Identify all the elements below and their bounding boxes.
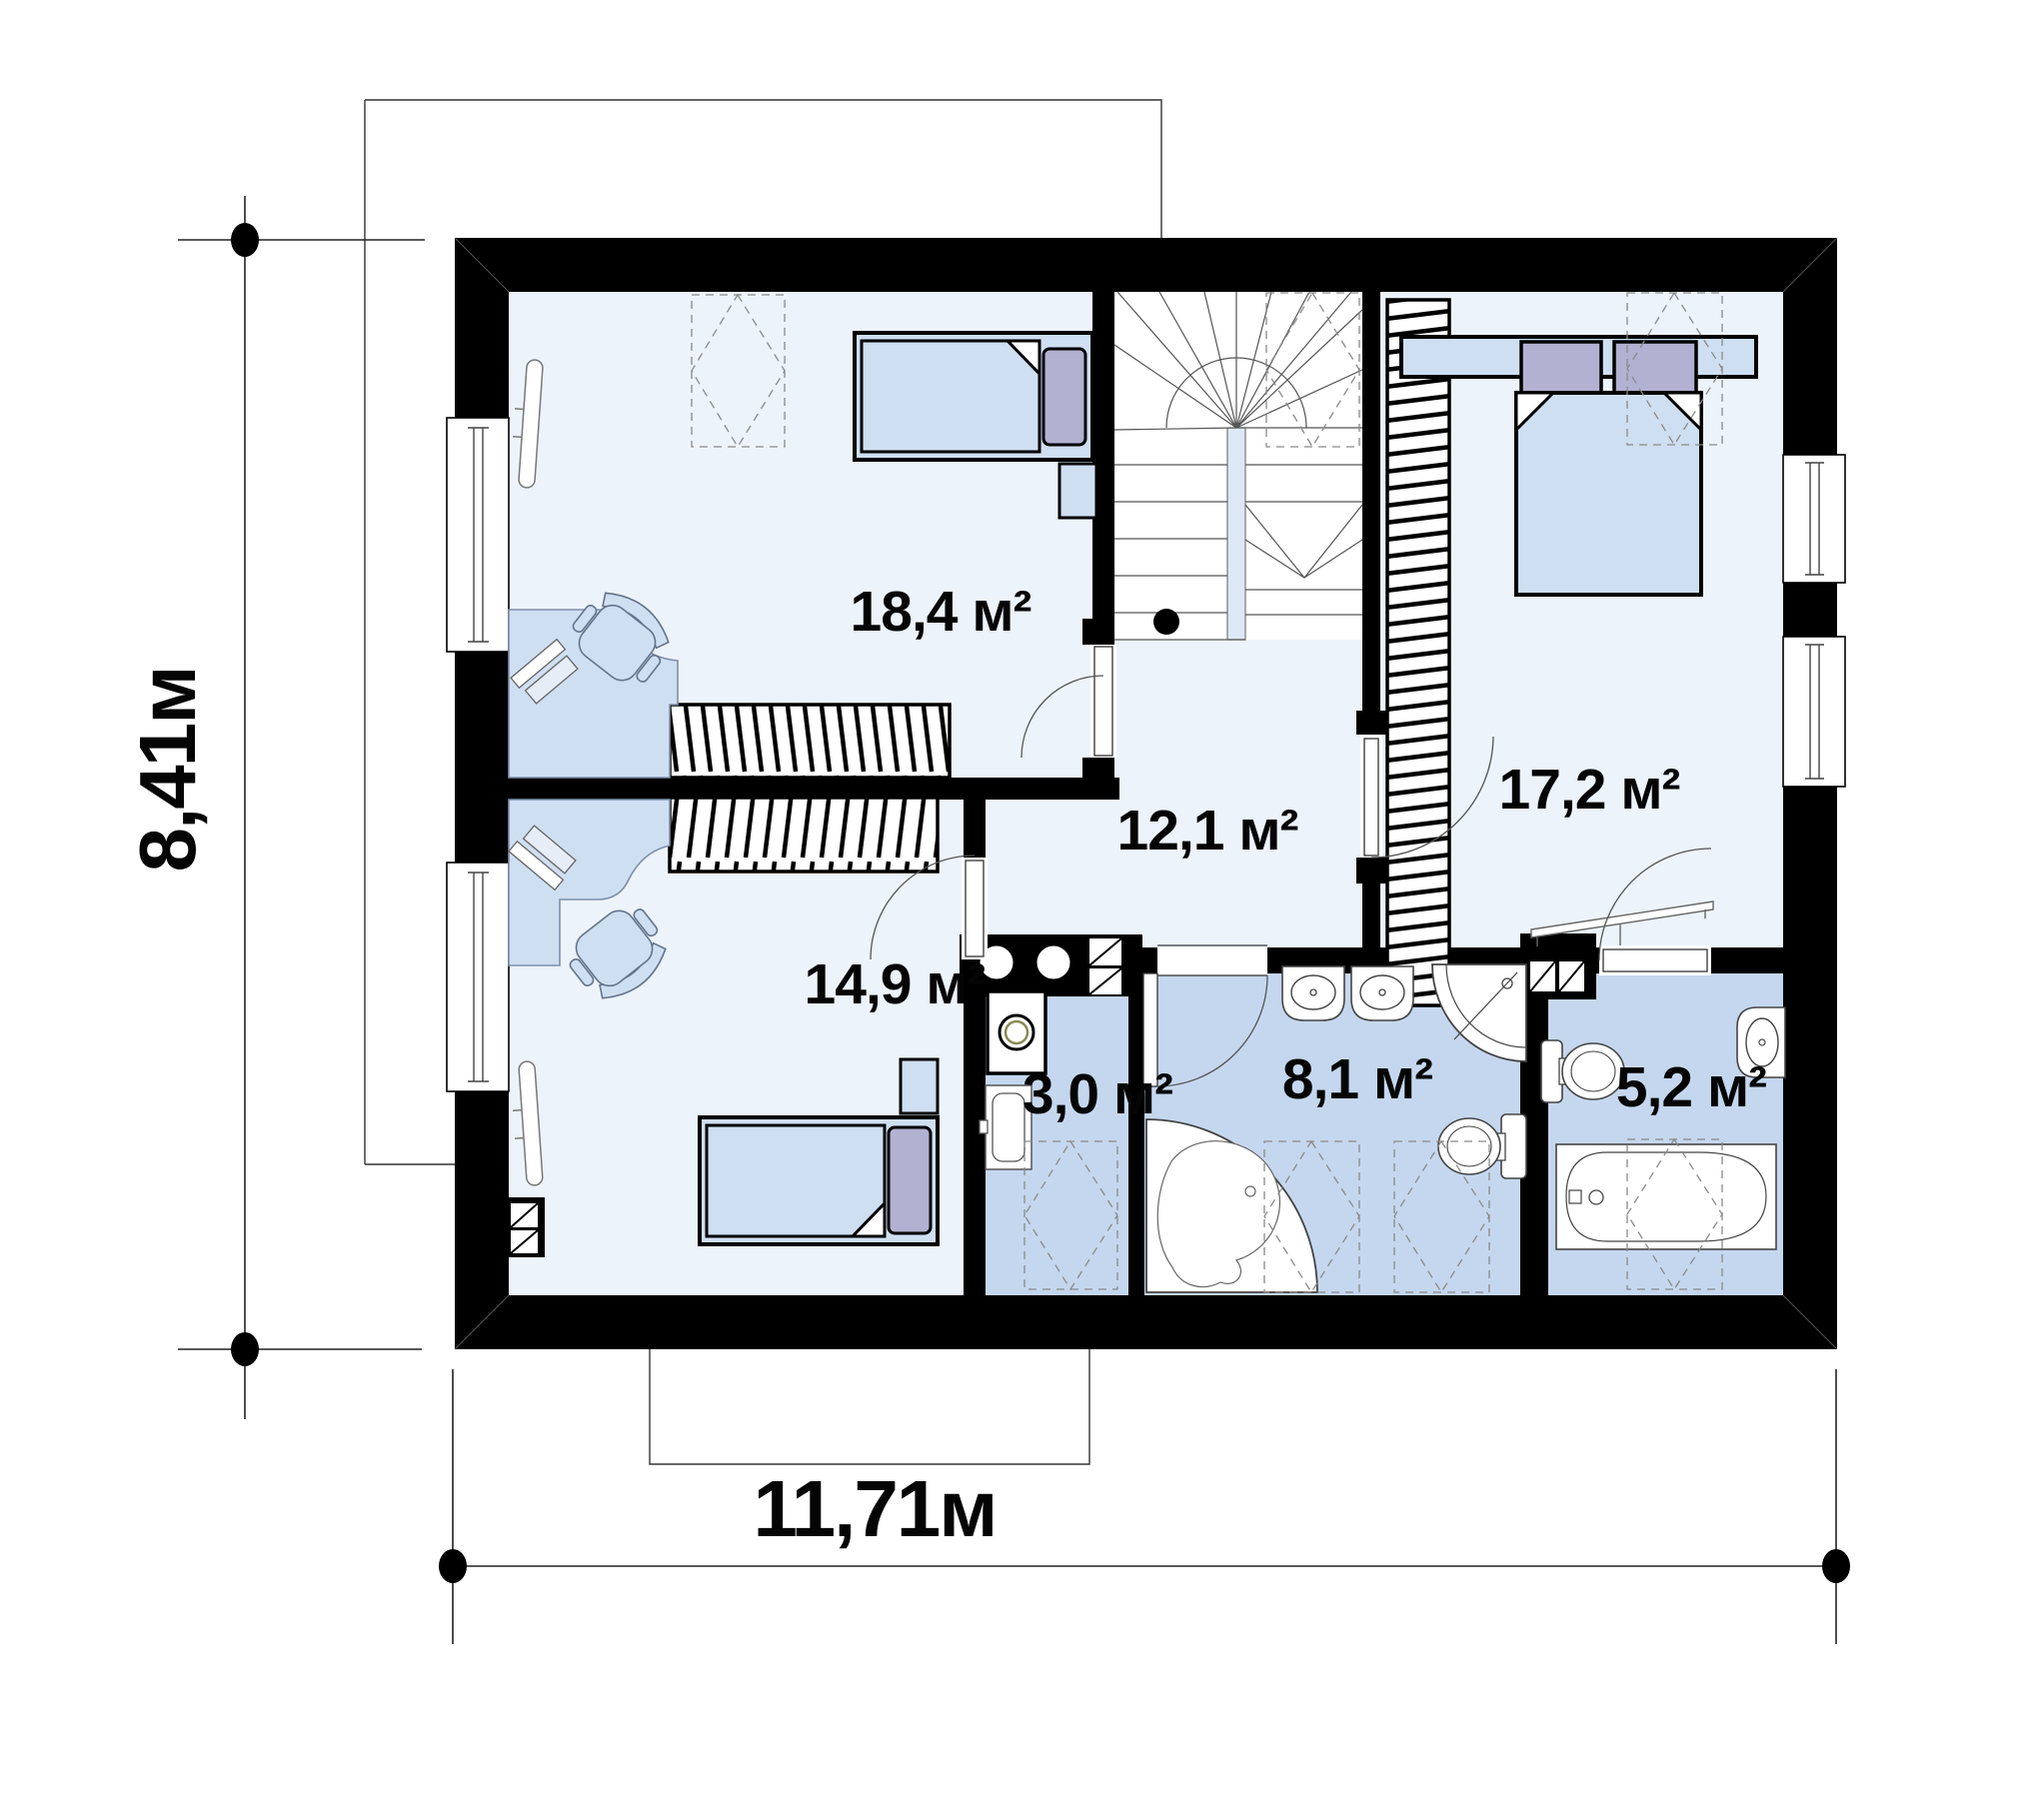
- wardrobe-icon: [670, 705, 950, 778]
- dimension-dot-icon: [231, 1332, 259, 1366]
- window-icon: [1783, 637, 1845, 787]
- nightstand-icon: [1059, 464, 1096, 518]
- room-area-label-laundry: 3,0 м²: [1022, 1061, 1172, 1127]
- window-icon: [1783, 455, 1845, 583]
- nightstand-icon: [901, 1059, 938, 1113]
- stair-newel-dot: [1153, 609, 1179, 635]
- room-area-label-bedroom-right: 17,2 м²: [1499, 757, 1680, 823]
- window-icon: [447, 418, 509, 652]
- floor-hall-upper: [1114, 640, 1362, 800]
- room-area-label-bathroom-small: 5,2 м²: [1616, 1054, 1766, 1120]
- toilet-icon: [1541, 1040, 1624, 1102]
- room-area-label-bedroom-bottom: 14,9 м²: [805, 951, 986, 1017]
- floor-plan-drawing: [0, 0, 2044, 1809]
- wardrobe-icon: [1387, 300, 1449, 1005]
- dimension-dot-icon: [439, 1549, 467, 1583]
- window-icon: [447, 863, 509, 1091]
- dimension-dot-icon: [1822, 1549, 1850, 1583]
- wardrobe-icon: [670, 798, 938, 872]
- sink-icon: [1282, 966, 1344, 1020]
- dimension-label-width: 11,71м: [754, 1463, 997, 1555]
- room-area-label-bedroom-top-left: 18,4 м²: [851, 579, 1031, 645]
- dimension-label-height: 8,41м: [122, 668, 214, 873]
- dimension-dot-icon: [231, 223, 259, 257]
- sink-icon: [1351, 966, 1413, 1020]
- bathtub-icon: [1556, 1144, 1776, 1249]
- room-area-label-bathroom-main: 8,1 м²: [1282, 1046, 1432, 1112]
- vent-shaft-icon: [505, 1197, 545, 1257]
- vent-shaft-icon: [1520, 933, 1596, 999]
- toilet-icon: [1438, 1114, 1526, 1178]
- room-area-label-hall: 12,1 м²: [1117, 798, 1298, 864]
- floor-plan-canvas: 18,4 м² 12,1 м² 17,2 м² 14,9 м² 3,0 м² 8…: [0, 0, 2044, 1809]
